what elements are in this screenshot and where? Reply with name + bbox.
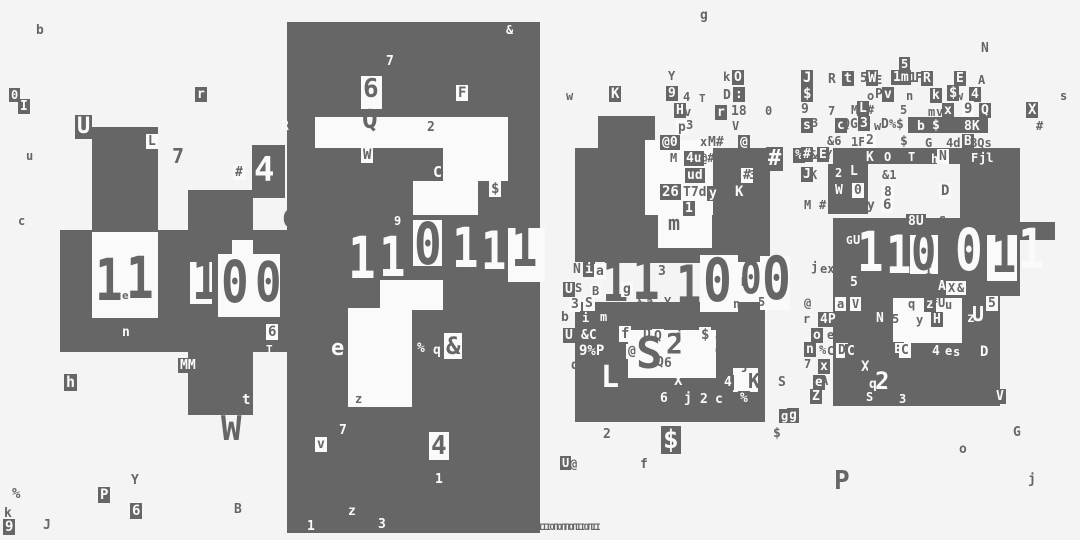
noise-glyph: &C [579,328,599,343]
noise-glyph: T [699,93,706,104]
noise-glyph: 4 [969,87,981,102]
noise-glyph: $ [661,426,681,454]
digit-glyph: 1 [481,225,506,278]
noise-glyph: k [930,88,942,103]
noise-glyph: F [971,152,978,164]
noise-glyph: 6 [266,324,278,340]
noise-glyph: @ [570,458,577,470]
digit-glyph: 1 [348,229,376,287]
noise-glyph: o [811,328,823,343]
noise-glyph: ud [685,168,705,183]
noise-glyph: D [723,89,731,102]
noise-glyph: % [738,391,750,406]
noise-glyph: W [361,147,373,163]
noise-glyph: 7 [172,146,184,166]
noise-glyph: c [739,345,746,357]
noise-glyph: a [646,296,653,308]
noise-glyph: I [925,265,932,277]
noise-glyph: Q [979,103,991,118]
noise-glyph: 4P [818,312,838,327]
noise-glyph: @ [738,135,750,150]
noise-glyph: U [75,115,92,139]
noise-glyph: A [978,74,985,86]
noise-glyph: 2 [666,330,683,358]
noise-glyph: 2 [864,133,876,148]
noise-glyph: J [801,70,813,86]
digit-glyph: 1 [991,228,1016,281]
noise-glyph: d [571,359,579,372]
noise-glyph: 4 [876,343,883,355]
noise-glyph: 3 [378,518,386,531]
noise-glyph: U [563,328,575,343]
noise-glyph: b [917,120,925,133]
noise-glyph: 1 [683,201,695,216]
noise-glyph: @ [804,297,811,309]
noise-glyph: 4 [429,432,449,460]
digit-glyph: 0 [221,253,249,311]
noise-glyph: Z [715,328,723,341]
noise-glyph: Q [842,118,850,131]
noise-glyph: y [867,199,875,212]
noise-glyph: 4 [930,344,942,359]
noise-glyph: 5 [884,343,891,355]
noise-glyph: @ [851,376,858,388]
noise-glyph: n [122,326,130,339]
noise-glyph: S [575,282,582,294]
noise-glyph: 26 [660,184,681,200]
noise-glyph: q [612,186,620,199]
noise-glyph: p [867,360,875,373]
noise-glyph: s [1060,90,1067,102]
noise-glyph: U [972,304,984,324]
noise-glyph: T [266,344,273,355]
noise-glyph: L [601,363,619,393]
noise-glyph: : [733,87,745,102]
noise-glyph: L [146,134,158,149]
noise-glyph: % [216,203,230,227]
noise-glyph: W [731,210,744,232]
noise-glyph: 5 [900,104,907,116]
noise-glyph: K [609,86,621,102]
noise-glyph: 7 [874,328,881,340]
digit-glyph: 0 [911,226,936,279]
noise-glyph: g [700,9,708,22]
noise-glyph: r [715,105,727,120]
noise-glyph: x [942,103,954,118]
noise-glyph: Y [664,296,671,308]
noise-glyph: u [26,150,33,162]
noise-glyph: T [908,151,915,163]
noise-glyph: A [821,375,828,387]
noise-glyph: q [908,298,915,310]
digit-glyph: 1 [452,222,479,277]
glitch-canvas: ΠΠWΠIΠΠΠWΠWIWIIOΠIIIOΠOΠΠOΠIIOΠII 110100… [0,0,1080,540]
noise-glyph: 4 [722,375,734,390]
noise-glyph: 2 [427,121,435,134]
noise-glyph: 4 [254,153,274,187]
noise-glyph: 3 [658,265,666,278]
noise-glyph: 5 [899,57,910,71]
noise-glyph: P [98,487,110,503]
digit-glyph: 0 [414,215,442,273]
noise-glyph: E [875,74,882,86]
noise-glyph: q [715,344,723,357]
noise-glyph: y [884,314,891,326]
noise-glyph: V [732,120,739,132]
noise-glyph: 3 [569,297,581,312]
noise-glyph: j [1028,473,1036,486]
noise-glyph: j [684,392,692,405]
noise-glyph: 5 [758,296,765,308]
noise-glyph: @#V5p [700,152,736,164]
noise-glyph: J [43,519,51,532]
noise-glyph: q [882,330,889,342]
noise-glyph: S [778,376,786,389]
panel-rect [443,148,508,181]
noise-glyph: e [945,345,952,357]
noise-glyph: e [827,329,834,341]
noise-glyph: N [573,263,581,276]
noise-glyph: c [715,393,723,406]
digit-glyph: 1 [95,251,123,309]
noise-glyph: & [506,24,513,36]
noise-glyph: c [18,215,25,227]
noise-glyph: S [583,296,595,311]
noise-glyph: G [846,235,853,246]
noise-glyph: 3 [811,117,818,129]
noise-glyph: 5 [986,296,998,311]
noise-glyph: % [417,342,425,355]
noise-glyph: 6 [363,76,379,102]
noise-glyph: 7 [804,358,811,370]
noise-glyph: x [700,136,707,148]
noise-glyph: 6 [664,357,672,370]
noise-glyph: a [835,297,846,311]
noise-glyph: 3 [899,393,906,405]
noise-glyph: 2 [700,393,708,406]
noise-glyph: X [1026,102,1038,118]
noise-glyph: $ [896,118,904,131]
noise-glyph: E [730,343,738,356]
digit-glyph: 0 [158,253,185,308]
noise-glyph: # [1036,120,1043,132]
noise-glyph: 4 [683,91,690,103]
noise-glyph: h [64,374,77,391]
noise-glyph: y [916,314,923,326]
noise-glyph: D [978,344,990,360]
noise-glyph: t [842,71,854,86]
noise-glyph: 8K [964,120,980,133]
noise-glyph: A [115,138,122,150]
noise-glyph: 3 [686,119,693,131]
digit-glyph: 0 [703,251,732,311]
noise-glyph: 2 [960,344,967,356]
noise-glyph: $ [773,427,781,440]
noise-glyph: @ [721,218,729,231]
noise-glyph: 0 [852,183,864,198]
noise-glyph: & [987,330,994,342]
noise-glyph: 5 [892,313,899,325]
noise-glyph: G [925,137,932,149]
noise-glyph: C [899,343,911,358]
noise-glyph: u [945,299,952,311]
noise-glyph: R [281,120,289,133]
noise-glyph: K [866,151,874,164]
noise-glyph: 7 [386,55,394,68]
noise-glyph: 2 [835,167,842,179]
noise-glyph: 9 [3,519,15,535]
noise-glyph: 7 [828,105,835,117]
noise-glyph: n [733,298,740,310]
noise-glyph: I [18,99,30,114]
blob-rect [960,160,1020,222]
noise-glyph: r [195,87,207,102]
digit-glyph: 1 [126,249,154,307]
noise-glyph: U [853,234,860,246]
noise-glyph: V [994,389,1006,404]
noise-glyph: 1 [435,473,443,486]
noise-glyph: jl [979,152,993,164]
noise-glyph: Y [131,474,139,487]
noise-glyph: T7d [683,186,706,199]
noise-glyph: v [315,437,327,452]
noise-glyph: Q [656,356,664,369]
digit-glyph: 0 [762,249,791,309]
noise-glyph: z [355,393,362,405]
noise-glyph: b [561,311,569,324]
noise-glyph: e [122,290,129,301]
noise-glyph: 9 [962,101,974,117]
noise-glyph: # [867,104,874,116]
noise-glyph: M# [708,136,724,149]
noise-glyph: N [937,149,949,164]
noise-glyph: O [884,151,891,163]
noise-glyph: 8 [886,379,893,391]
noise-glyph: Y [668,70,675,82]
noise-glyph: % [819,344,826,356]
noise-glyph: # [766,147,783,171]
noise-glyph: $ [932,119,940,132]
noise-glyph: V [850,297,861,311]
noise-glyph: & [637,296,644,308]
noise-glyph: C [282,207,296,231]
noise-glyph: B [234,503,242,516]
noise-glyph: $ [489,181,501,197]
digit-glyph: 1 [511,221,538,276]
digit-glyph: 1 [857,226,884,281]
noise-glyph: w [566,90,573,102]
noise-glyph: 2 [866,328,873,340]
digit-glyph: 0 [255,256,282,311]
noise-glyph: x [818,359,830,374]
noise-glyph: v [684,106,691,118]
noise-glyph: X [674,374,682,388]
noise-glyph: f [640,458,648,471]
noise-glyph: m [668,213,680,233]
noise-glyph: 1m [891,70,911,85]
noise-glyph: 1 [745,186,752,198]
noise-glyph: e [331,338,344,360]
noise-glyph: 9 [666,86,678,101]
noise-glyph: $ [900,135,908,148]
noise-glyph: $ [699,327,711,343]
noise-glyph: # [233,165,245,180]
digit-glyph: 1 [379,231,406,286]
noise-glyph: 6 [881,197,893,213]
noise-glyph: v [882,87,894,102]
noise-glyph: 4 [973,265,980,277]
noise-glyph: m [928,106,935,118]
noise-glyph: BQs [970,137,992,149]
noise-glyph: y [707,186,719,201]
noise-glyph: $ [801,86,813,102]
noise-glyph: k [723,71,730,83]
noise-glyph: 6 [660,392,668,405]
noise-glyph: n [906,90,913,102]
noise-glyph: 1 [307,520,315,533]
noise-glyph: G [1013,426,1021,439]
noise-glyph: @0 [660,135,680,150]
noise-glyph: Z [810,389,822,404]
noise-glyph: M [670,152,677,164]
noise-glyph: P [834,468,850,494]
noise-glyph: 4d [946,137,960,149]
noise-glyph: n [804,342,816,357]
noise-glyph: a [594,264,606,279]
noise-glyph: b [36,24,44,37]
noise-glyph: m [598,310,609,324]
noise-glyph: 9 [394,215,401,227]
noise-glyph: S [866,391,873,403]
noise-glyph: H [931,312,943,327]
noise-glyph: 2 [603,428,611,441]
noise-glyph: % [12,487,20,501]
noise-glyph: ext [820,263,842,275]
noise-glyph: K [748,371,760,391]
digit-glyph: 1 [886,229,911,282]
noise-glyph: g [779,409,790,423]
noise-glyph: t [242,393,250,407]
noise-glyph: 6 [130,503,142,519]
noise-glyph: D [881,118,889,131]
noise-glyph: g [621,282,633,297]
noise-glyph: U [563,282,575,297]
noise-glyph: R [828,73,836,86]
noise-glyph: M [804,199,811,211]
noise-glyph: W [221,412,241,446]
noise-glyph: C [845,344,857,359]
digit-glyph: 1 [1018,223,1045,278]
noise-glyph: 18 [731,105,747,118]
noise-glyph: W [835,184,843,197]
noise-glyph: C [433,165,442,180]
noise-glyph: 9%P [577,343,606,359]
panel-rect [315,117,508,148]
noise-glyph: G [850,118,858,131]
digit-glyph: 1 [676,259,701,312]
noise-glyph: z [348,505,356,518]
noise-glyph: S [939,215,946,227]
noise-glyph: Q [362,107,378,133]
noise-glyph: 3 [858,116,870,131]
noise-glyph: 7 [339,424,347,437]
noise-glyph: Y [825,149,832,161]
noise-glyph: D [939,183,951,199]
noise-glyph: J [948,265,955,277]
noise-glyph: N [981,42,989,55]
noise-glyph: I [986,313,993,325]
noise-glyph: &6 [827,135,841,147]
noise-glyph: & [955,281,966,295]
noise-glyph: R [921,71,933,86]
noise-glyph: 9 [866,313,873,325]
noise-glyph: & [444,333,462,359]
noise-glyph: 8U [906,214,926,229]
noise-glyph: O [732,70,744,85]
noise-glyph: o [959,443,967,456]
noise-glyph: 0 [765,105,772,117]
noise-glyph: 9 [801,103,809,116]
noise-glyph: MM [178,358,198,373]
noise-glyph: # [819,199,826,211]
noise-glyph: f [619,326,631,342]
noise-glyph: i [580,311,591,325]
noise-glyph: C [827,345,834,357]
noise-glyph: &1 [882,169,896,181]
noise-glyph: 3m [749,169,763,181]
noise-glyph: q [433,344,441,357]
noise-glyph: r [803,313,810,325]
noise-glyph: K [733,184,745,200]
digit-glyph: 1 [192,254,219,309]
noise-glyph: j [811,261,818,273]
noise-glyph: B [741,276,748,288]
noise-glyph: F [456,85,468,101]
noise-glyph: E [954,71,966,86]
noise-glyph: K [810,169,817,181]
noise-glyph: 5 [850,276,858,289]
noise-glyph: L [850,165,858,178]
